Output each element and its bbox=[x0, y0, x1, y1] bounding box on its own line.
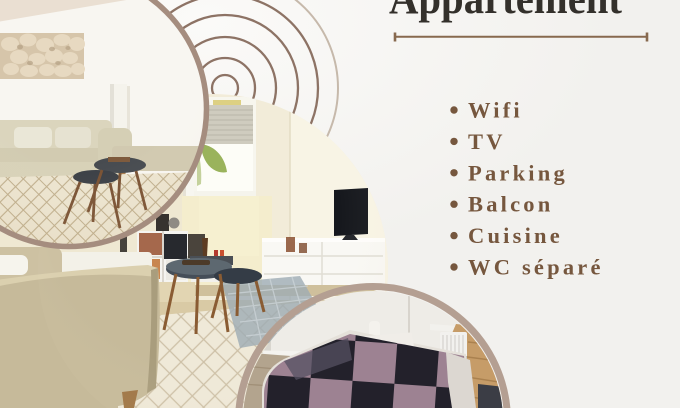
svg-text:Parking: Parking bbox=[468, 160, 568, 185]
svg-text:Appartement: Appartement bbox=[389, 0, 622, 23]
svg-text:TV: TV bbox=[468, 129, 506, 154]
svg-text:Wifi: Wifi bbox=[468, 98, 523, 123]
svg-text:Balcon: Balcon bbox=[468, 192, 553, 217]
svg-text:WC séparé: WC séparé bbox=[468, 255, 604, 280]
svg-text:Cuisine: Cuisine bbox=[468, 223, 563, 248]
